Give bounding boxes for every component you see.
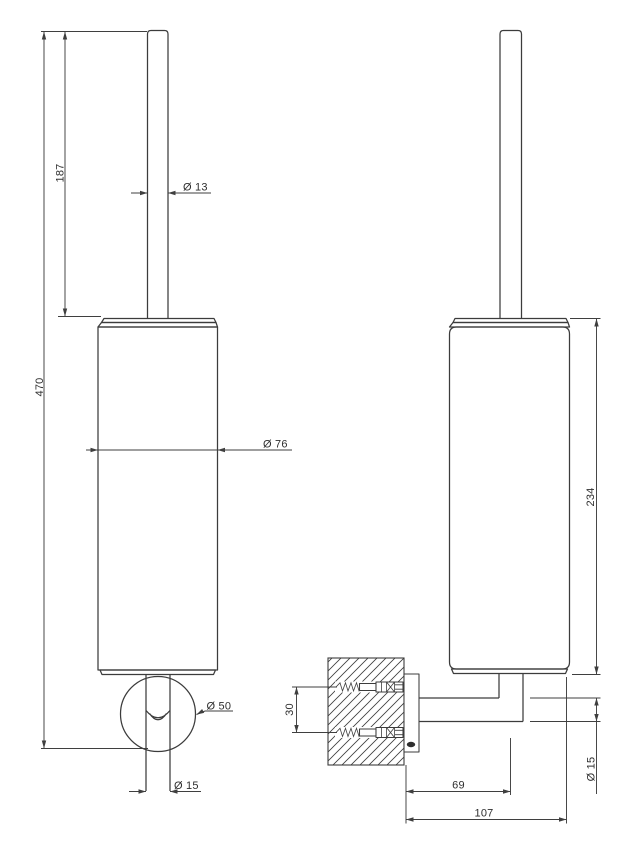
anchor-screw-top: [335, 682, 403, 693]
arrowhead: [197, 709, 205, 715]
dim-overall-height: 470: [34, 32, 148, 749]
canister-body-side: [450, 327, 570, 669]
dim-arm-diameter: Ø 15: [530, 698, 601, 794]
dim-label: 470: [34, 378, 46, 397]
dim-handle-length: 187: [55, 32, 102, 317]
dim-label: 187: [55, 164, 67, 183]
dim-rosette-diameter: Ø 50: [197, 701, 234, 715]
lid-band-front: [98, 323, 218, 328]
bottom-band-side: [452, 669, 568, 674]
dimensions: 470 187 Ø 13 Ø 76 Ø 50: [34, 32, 601, 824]
technical-drawing-canvas: 470 187 Ø 13 Ø 76 Ø 50: [0, 0, 629, 841]
set-screw: [407, 742, 415, 747]
dim-label: 107: [475, 808, 494, 820]
screw-shaft: [360, 729, 377, 736]
dim-label: 30: [284, 703, 296, 716]
dim-body-diameter: Ø 76: [86, 439, 292, 453]
lid-band-side: [450, 323, 570, 328]
tube-bend-arc: [146, 711, 170, 720]
dim-wall-to-tube-center: 69: [406, 738, 511, 795]
dim-label: Ø 13: [183, 182, 208, 194]
drop-tube-side: [499, 674, 523, 722]
wall-plug: [376, 682, 403, 692]
dim-label: 234: [585, 488, 597, 507]
dim-handle-diameter: Ø 13: [131, 182, 211, 196]
drop-tube-front: [146, 675, 170, 792]
brush-handle-front: [148, 31, 169, 319]
dim-line: [406, 677, 567, 824]
side-view: [328, 31, 570, 766]
arrowhead: [139, 789, 178, 793]
dim-body-height: 234: [570, 319, 601, 675]
front-view: [98, 31, 218, 792]
dim-line: [41, 32, 148, 749]
dim-label: Ø 50: [207, 701, 232, 713]
wall-section: [328, 658, 404, 765]
dim-tube-diameter: Ø 15: [129, 780, 201, 794]
brush-handle-side: [500, 31, 522, 319]
canister-body-front: [98, 327, 218, 670]
drawing-sheet: 470 187 Ø 13 Ø 76 Ø 50: [0, 0, 629, 841]
dim-label: Ø 15: [586, 757, 598, 782]
screw-shaft: [360, 684, 377, 691]
wall-rosette-front: [121, 677, 196, 752]
dim-wall-to-outer-edge: 107: [406, 677, 567, 824]
wall-arm: [419, 698, 523, 722]
dim-label: 69: [452, 780, 465, 792]
mounting-plate: [404, 674, 419, 752]
arrowhead: [140, 191, 176, 195]
dim-label: Ø 76: [263, 439, 288, 451]
wall-plug: [376, 728, 403, 738]
dim-label: Ø 15: [174, 780, 199, 792]
bottom-band-front: [100, 670, 216, 675]
anchor-screw-bottom: [335, 727, 403, 738]
